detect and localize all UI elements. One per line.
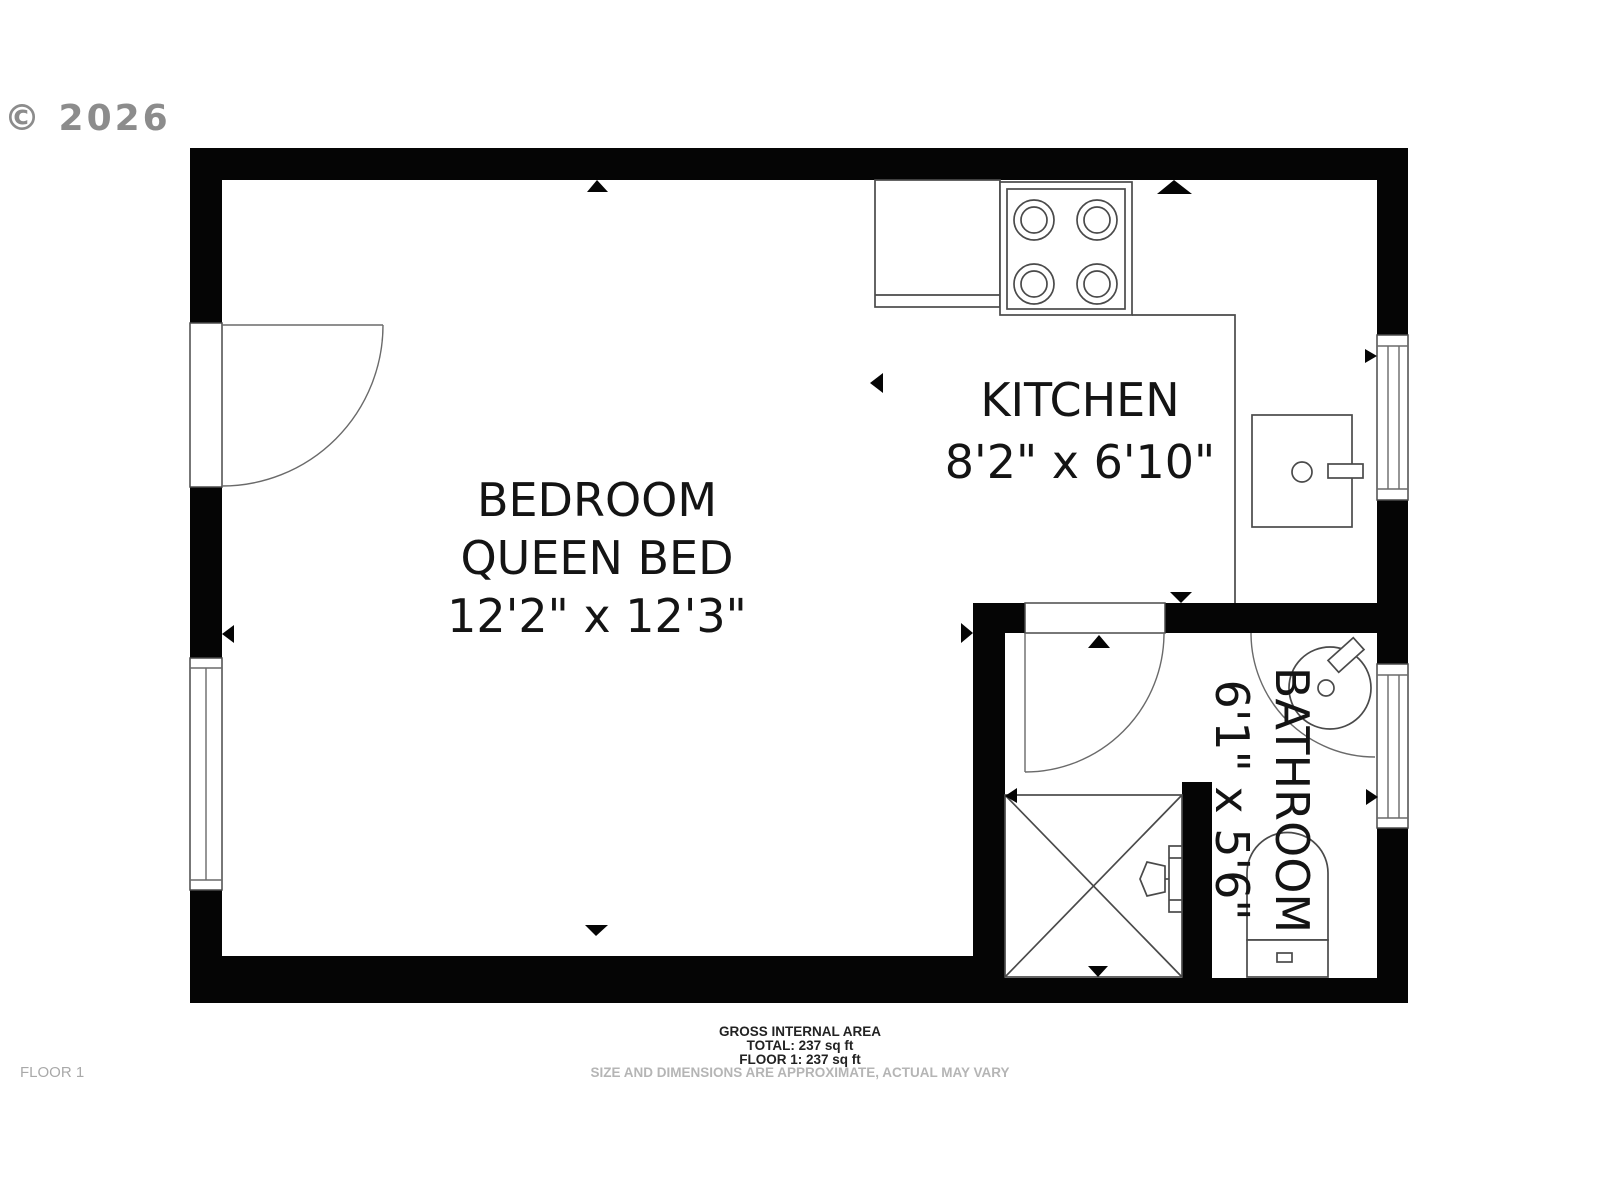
bedroom-door (190, 323, 383, 487)
arrow-up-icon (587, 180, 608, 192)
kitchen-name: KITCHEN (980, 373, 1179, 427)
bathroom-window (1377, 664, 1408, 828)
floorplan-page: BEDROOM QUEEN BED 12'2" x 12'3" KITCHEN … (0, 0, 1600, 1200)
wall-bathroom-top-right (1165, 603, 1377, 633)
arrow-down-icon (1170, 592, 1192, 603)
wall-bottom-bathroom (1005, 978, 1408, 1003)
bedroom-subtitle: QUEEN BED (460, 531, 733, 585)
gross-internal-area-title: GROSS INTERNAL AREA (719, 1024, 881, 1039)
kitchen-window (1377, 335, 1408, 500)
bedroom-door-swing-arc (222, 325, 383, 486)
bedroom-door-opening (190, 323, 222, 487)
arrow-left-icon (870, 373, 883, 393)
wall-left-middle (190, 487, 222, 658)
shower-rail (1169, 846, 1182, 912)
arrow-right-icon (1366, 789, 1378, 805)
total-area-value: TOTAL: 237 sq ft (747, 1038, 854, 1053)
wall-right-lower (1377, 828, 1408, 1003)
dimensions-disclaimer: SIZE AND DIMENSIONS ARE APPROXIMATE, ACT… (590, 1065, 1009, 1080)
bedroom-dimensions: 12'2" x 12'3" (447, 589, 747, 643)
toilet-tank (1247, 940, 1328, 977)
arrow-up-icon (1088, 635, 1110, 648)
kitchen-dimensions: 8'2" x 6'10" (945, 435, 1215, 489)
wall-right-middle (1377, 500, 1408, 664)
bedroom-name: BEDROOM (477, 473, 717, 527)
kitchen-label: KITCHEN 8'2" x 6'10" (945, 373, 1215, 489)
shower-head (1140, 862, 1165, 896)
wall-bathroom-top-left (973, 603, 1025, 633)
bathroom-name: BATHROOM (1265, 667, 1319, 933)
bathroom-door-swing-arc (1025, 633, 1164, 772)
wall-bottom-bedroom (190, 956, 1005, 1003)
wall-right-upper (1377, 148, 1408, 335)
bedroom-label: BEDROOM QUEEN BED 12'2" x 12'3" (447, 473, 747, 643)
arrow-up-icon (1157, 180, 1192, 194)
arrow-right-icon (1365, 349, 1377, 363)
arrow-left-icon (222, 625, 234, 643)
wall-left-upper (190, 148, 222, 323)
stove (1000, 182, 1132, 315)
shower (1005, 795, 1182, 977)
footer-area-summary: GROSS INTERNAL AREA TOTAL: 237 sq ft FLO… (590, 1024, 1009, 1080)
arrow-down-icon (585, 925, 608, 936)
floorplan-canvas: BEDROOM QUEEN BED 12'2" x 12'3" KITCHEN … (0, 0, 1600, 1200)
bathroom-door (1025, 603, 1165, 772)
bathroom-door-opening (1025, 603, 1165, 633)
arrow-down-icon (1088, 966, 1108, 977)
bedroom-window (190, 658, 222, 890)
kitchen-sink (1252, 415, 1363, 527)
floor-label: FLOOR 1 (20, 1064, 84, 1081)
wall-bathroom-left (973, 603, 1005, 1003)
wall-top (190, 148, 1408, 180)
copyright-watermark: © 2026 (4, 98, 171, 139)
bathroom-dimensions: 6'1" x 5'6" (1205, 679, 1259, 920)
arrow-right-icon (961, 623, 973, 643)
